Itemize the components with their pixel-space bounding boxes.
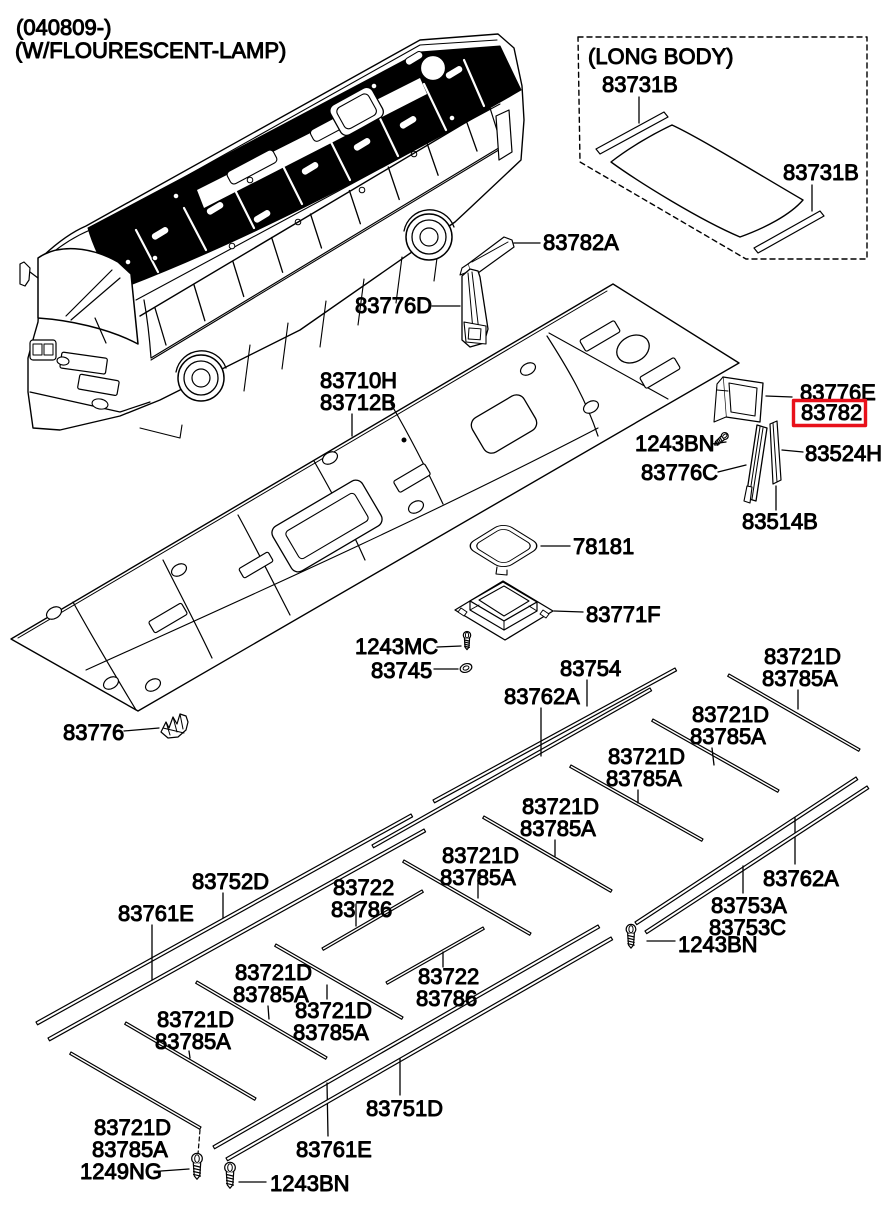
svg-text:83785A: 83785A <box>690 724 766 749</box>
svg-text:83514B: 83514B <box>742 509 818 534</box>
svg-text:83786: 83786 <box>331 897 392 922</box>
svg-text:83786: 83786 <box>416 986 477 1011</box>
svg-text:1243BN: 1243BN <box>678 932 758 957</box>
svg-text:1243BN: 1243BN <box>270 1171 350 1196</box>
svg-text:1249NG: 1249NG <box>80 1159 162 1184</box>
svg-text:1243MC: 1243MC <box>355 634 438 659</box>
svg-text:83776C: 83776C <box>641 460 718 485</box>
svg-text:83785A: 83785A <box>762 666 838 691</box>
svg-text:83752D: 83752D <box>192 869 269 894</box>
svg-text:83785A: 83785A <box>606 766 682 791</box>
svg-text:83751D: 83751D <box>366 1096 443 1121</box>
svg-text:1243BN: 1243BN <box>635 431 715 456</box>
svg-text:83782A: 83782A <box>543 230 619 255</box>
svg-text:(W/FLOURESCENT-LAMP): (W/FLOURESCENT-LAMP) <box>15 38 286 63</box>
svg-text:83762A: 83762A <box>763 866 839 891</box>
svg-text:83745: 83745 <box>371 658 432 683</box>
svg-text:83762A: 83762A <box>504 684 580 709</box>
svg-text:83761E: 83761E <box>118 901 194 926</box>
svg-text:83776D: 83776D <box>355 293 432 318</box>
svg-text:83782: 83782 <box>801 400 862 425</box>
svg-text:83785A: 83785A <box>155 1029 231 1054</box>
svg-text:83776: 83776 <box>63 720 124 745</box>
svg-text:83771F: 83771F <box>586 602 661 627</box>
svg-text:83761E: 83761E <box>296 1137 372 1162</box>
svg-text:83754: 83754 <box>560 656 621 681</box>
svg-text:83731B: 83731B <box>783 160 859 185</box>
svg-text:83785A: 83785A <box>293 1020 369 1045</box>
svg-text:83785A: 83785A <box>520 816 596 841</box>
svg-text:83731B: 83731B <box>602 72 678 97</box>
svg-text:(LONG BODY): (LONG BODY) <box>588 44 733 69</box>
svg-text:(040809-): (040809-) <box>16 15 111 40</box>
svg-text:83524H: 83524H <box>805 441 882 466</box>
svg-text:83712B: 83712B <box>320 390 396 415</box>
svg-text:78181: 78181 <box>573 534 634 559</box>
